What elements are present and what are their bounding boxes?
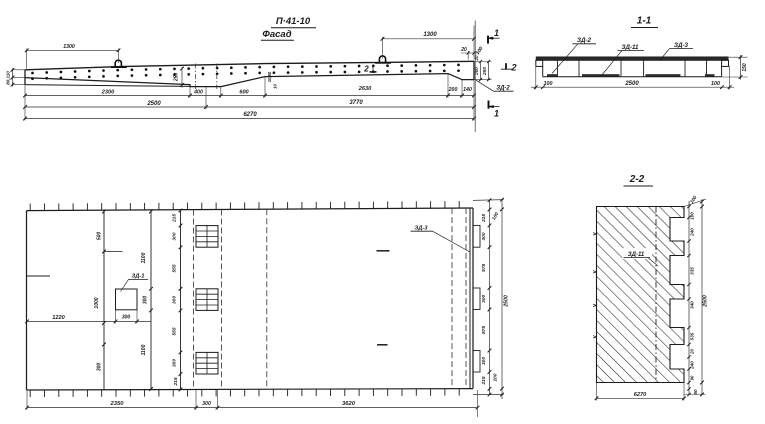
svg-text:300: 300 xyxy=(143,296,149,305)
svg-text:2500: 2500 xyxy=(146,101,161,107)
svg-text:300: 300 xyxy=(202,401,211,407)
svg-text:1: 1 xyxy=(494,28,499,38)
svg-text:100: 100 xyxy=(711,81,720,87)
svg-text:ЗД-1: ЗД-1 xyxy=(131,274,144,280)
svg-text:555: 555 xyxy=(172,264,178,272)
svg-text:6270: 6270 xyxy=(243,112,257,118)
svg-text:10: 10 xyxy=(273,84,278,89)
svg-text:535: 535 xyxy=(690,332,695,340)
svg-text:10,60: 10,60 xyxy=(267,71,272,82)
svg-text:140: 140 xyxy=(463,87,472,93)
svg-text:100: 100 xyxy=(544,81,553,87)
svg-text:2500: 2500 xyxy=(624,81,639,87)
svg-text:555: 555 xyxy=(172,327,178,335)
svg-text:ЗД-11: ЗД-11 xyxy=(622,44,639,51)
svg-text:600: 600 xyxy=(239,90,249,96)
svg-text:300: 300 xyxy=(481,357,487,365)
svg-text:3770: 3770 xyxy=(349,100,363,106)
svg-text:400: 400 xyxy=(193,90,203,96)
svg-text:1300: 1300 xyxy=(423,32,437,38)
svg-text:2-2: 2-2 xyxy=(629,174,645,185)
svg-text:П·41-10: П·41-10 xyxy=(276,16,311,27)
svg-text:1-1: 1-1 xyxy=(637,16,652,27)
svg-text:ЗД-3: ЗД-3 xyxy=(414,226,428,232)
svg-text:575: 575 xyxy=(481,263,487,271)
svg-text:200: 200 xyxy=(474,67,479,76)
svg-text:1100: 1100 xyxy=(141,252,147,263)
svg-text:250: 250 xyxy=(174,73,180,83)
svg-text:80,110: 80,110 xyxy=(6,71,11,85)
svg-text:20: 20 xyxy=(690,349,695,355)
svg-text:200: 200 xyxy=(448,87,458,93)
svg-text:1100: 1100 xyxy=(141,344,147,355)
svg-text:340: 340 xyxy=(690,301,695,309)
svg-text:335: 335 xyxy=(690,267,695,275)
svg-text:300: 300 xyxy=(481,294,487,302)
svg-text:2350: 2350 xyxy=(110,401,125,407)
svg-text:ЗД-2: ЗД-2 xyxy=(496,86,510,92)
svg-text:215: 215 xyxy=(172,214,178,223)
svg-text:6270: 6270 xyxy=(634,392,647,398)
svg-text:1000: 1000 xyxy=(94,297,100,308)
svg-text:300: 300 xyxy=(172,232,178,240)
svg-text:Фасад: Фасад xyxy=(262,29,291,40)
svg-text:1220: 1220 xyxy=(52,315,65,321)
svg-text:ЗД-11: ЗД-11 xyxy=(628,252,645,258)
svg-text:300: 300 xyxy=(122,315,131,321)
svg-text:100: 100 xyxy=(493,373,499,381)
svg-text:1300: 1300 xyxy=(63,44,75,50)
svg-text:240: 240 xyxy=(690,228,695,237)
svg-text:1: 1 xyxy=(494,109,499,119)
svg-text:300: 300 xyxy=(172,359,178,367)
svg-text:2630: 2630 xyxy=(358,86,372,92)
svg-text:150: 150 xyxy=(742,63,748,72)
svg-text:60: 60 xyxy=(693,389,698,395)
svg-text:300: 300 xyxy=(172,296,178,304)
svg-text:215: 215 xyxy=(481,214,487,223)
svg-text:20: 20 xyxy=(474,55,479,62)
svg-text:20: 20 xyxy=(460,47,467,53)
svg-text:215: 215 xyxy=(481,376,487,385)
svg-text:2500: 2500 xyxy=(504,295,510,308)
svg-text:2500: 2500 xyxy=(703,295,709,308)
svg-text:2300: 2300 xyxy=(101,89,115,95)
svg-text:240: 240 xyxy=(690,361,695,370)
svg-text:500: 500 xyxy=(96,232,102,241)
svg-text:100: 100 xyxy=(690,212,695,220)
svg-text:3620: 3620 xyxy=(342,401,356,407)
svg-text:575: 575 xyxy=(481,326,487,334)
svg-text:ЗД-2: ЗД-2 xyxy=(577,37,592,44)
svg-text:215: 215 xyxy=(173,377,179,386)
svg-text:2: 2 xyxy=(510,63,516,73)
svg-text:300: 300 xyxy=(481,232,487,240)
svg-text:ЗД-3: ЗД-3 xyxy=(674,42,689,49)
svg-text:250: 250 xyxy=(482,67,488,76)
svg-text:300: 300 xyxy=(96,363,102,372)
svg-text:90: 90 xyxy=(690,375,695,380)
svg-text:2: 2 xyxy=(363,65,369,74)
